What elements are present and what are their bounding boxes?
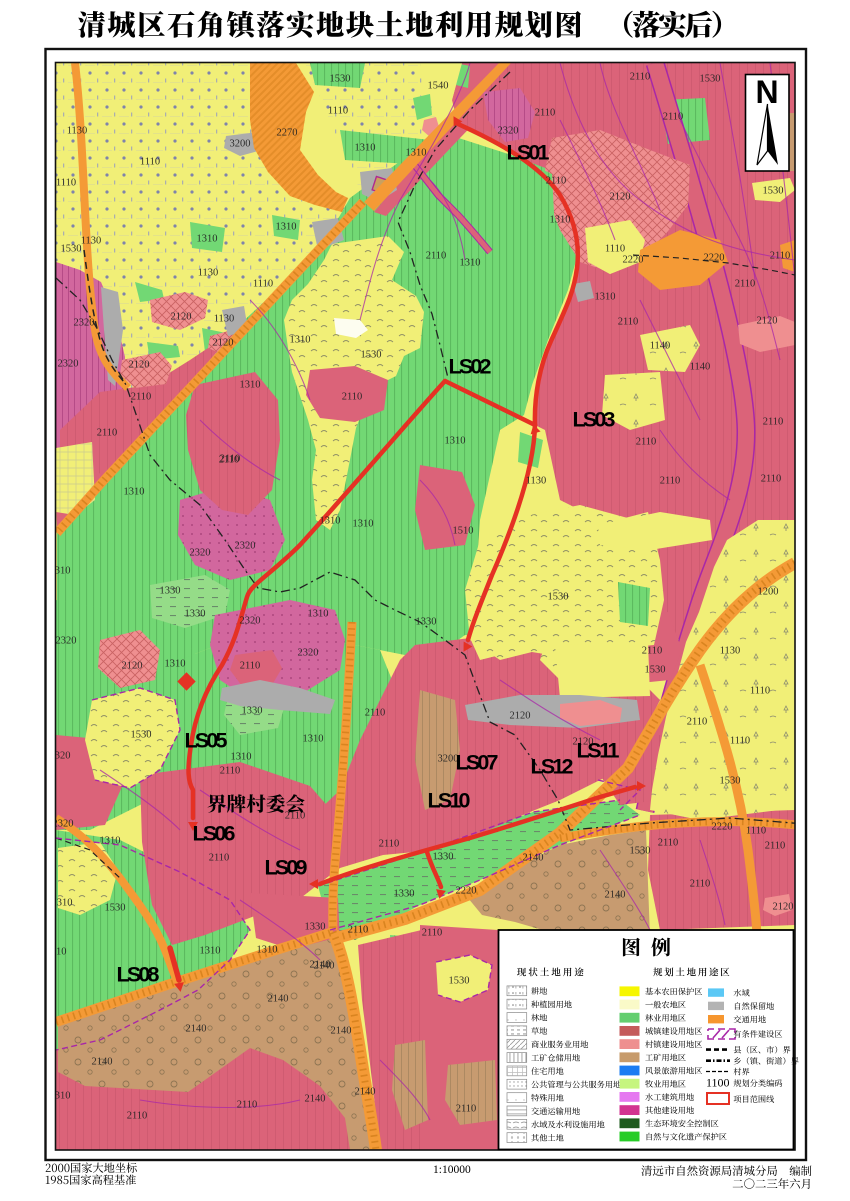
svg-text:2110: 2110	[663, 112, 684, 123]
svg-text:1330: 1330	[305, 922, 326, 933]
svg-text:2320: 2320	[56, 636, 77, 647]
svg-text:1110: 1110	[746, 826, 766, 837]
svg-text:2110: 2110	[97, 428, 118, 439]
svg-text:2110: 2110	[127, 1111, 148, 1122]
svg-text:2110: 2110	[342, 392, 363, 403]
svg-text:1100: 1100	[706, 1076, 730, 1090]
svg-text:2120: 2120	[757, 316, 778, 327]
svg-text:1530: 1530	[763, 186, 784, 197]
svg-text:1110: 1110	[140, 157, 160, 168]
svg-text:1530: 1530	[548, 592, 569, 603]
svg-text:LS10: LS10	[428, 789, 471, 813]
svg-text:1310: 1310	[406, 148, 427, 159]
svg-text:2110: 2110	[365, 708, 386, 719]
svg-text:2320: 2320	[240, 616, 261, 627]
svg-text:1310: 1310	[460, 258, 481, 269]
svg-text:2110: 2110	[546, 176, 567, 187]
svg-text:2140: 2140	[310, 960, 331, 971]
svg-text:2110: 2110	[535, 108, 556, 119]
svg-text:2120: 2120	[129, 360, 150, 371]
svg-text:2110: 2110	[422, 928, 443, 939]
svg-text:1540: 1540	[428, 81, 449, 92]
svg-text:2110: 2110	[687, 717, 708, 728]
svg-text:1330: 1330	[185, 609, 206, 620]
svg-text:2320: 2320	[190, 548, 211, 559]
svg-text:2120: 2120	[171, 312, 192, 323]
svg-text:1110: 1110	[253, 279, 273, 290]
svg-text:2110: 2110	[660, 476, 681, 487]
svg-text:2120: 2120	[510, 711, 531, 722]
svg-text:1130: 1130	[720, 646, 741, 657]
svg-text:1310: 1310	[308, 609, 329, 620]
svg-text:1310: 1310	[550, 215, 571, 226]
svg-text:1530: 1530	[105, 903, 126, 914]
svg-text:1530: 1530	[449, 976, 470, 987]
svg-text:2140: 2140	[331, 1026, 352, 1037]
svg-text:2110: 2110	[770, 251, 791, 262]
svg-text:1530: 1530	[720, 776, 741, 787]
svg-text:2110: 2110	[642, 646, 663, 657]
svg-text:2320: 2320	[74, 318, 95, 329]
svg-text:2110: 2110	[209, 853, 230, 864]
svg-text:LS05: LS05	[185, 729, 228, 753]
svg-text:2110: 2110	[219, 455, 240, 466]
svg-text:LS09: LS09	[265, 856, 308, 880]
svg-text:2220: 2220	[456, 886, 477, 897]
svg-text:1310: 1310	[231, 752, 252, 763]
svg-text:2120: 2120	[610, 192, 631, 203]
svg-text:1330: 1330	[394, 889, 415, 900]
svg-text:2110: 2110	[618, 317, 639, 328]
svg-text:2110: 2110	[630, 72, 651, 83]
svg-text:1310: 1310	[240, 380, 261, 391]
svg-text:2110: 2110	[426, 251, 447, 262]
svg-text:1130: 1130	[214, 314, 235, 325]
svg-text:LS12: LS12	[531, 755, 574, 779]
svg-text:1330: 1330	[242, 706, 263, 717]
svg-text:1530: 1530	[131, 730, 152, 741]
svg-text:2110: 2110	[761, 474, 782, 485]
svg-text:2140: 2140	[355, 1087, 376, 1098]
svg-text:1310: 1310	[320, 516, 341, 527]
svg-text:2140: 2140	[268, 994, 289, 1005]
svg-text:1510: 1510	[453, 526, 474, 537]
svg-text:2110: 2110	[765, 841, 786, 852]
svg-text:2120: 2120	[213, 338, 234, 349]
svg-text:1110: 1110	[730, 736, 750, 747]
svg-text:2110: 2110	[636, 437, 657, 448]
svg-text:2110: 2110	[763, 417, 784, 428]
svg-text:2220: 2220	[712, 822, 733, 833]
svg-text:1530: 1530	[61, 244, 82, 255]
svg-text:LS08: LS08	[117, 963, 160, 987]
svg-text:1310: 1310	[290, 335, 311, 346]
svg-text:2110: 2110	[456, 1104, 477, 1115]
svg-text:1110: 1110	[56, 178, 76, 189]
svg-text:1110: 1110	[605, 244, 625, 255]
svg-text:1530: 1530	[361, 350, 382, 361]
svg-text:1310: 1310	[165, 659, 186, 670]
svg-text:2110: 2110	[690, 879, 711, 890]
svg-text:LS07: LS07	[456, 751, 499, 775]
svg-text:2110: 2110	[658, 838, 679, 849]
svg-text:2110: 2110	[237, 1100, 258, 1111]
svg-text:1310: 1310	[303, 734, 324, 745]
svg-text:1200: 1200	[758, 587, 779, 598]
svg-text:2140: 2140	[186, 1024, 207, 1035]
svg-text:2110: 2110	[220, 766, 241, 777]
svg-text:1130: 1130	[67, 126, 88, 137]
svg-text:1310: 1310	[276, 222, 297, 233]
svg-text:LS03: LS03	[573, 408, 616, 432]
svg-text:1330: 1330	[433, 852, 454, 863]
svg-text:1310: 1310	[100, 836, 121, 847]
svg-text:1530: 1530	[645, 665, 666, 676]
svg-text:2110: 2110	[379, 839, 400, 850]
svg-text:1110: 1110	[750, 686, 770, 697]
svg-text:1330: 1330	[160, 586, 181, 597]
svg-text:2110: 2110	[131, 392, 152, 403]
svg-text:2120: 2120	[773, 902, 794, 913]
svg-text:2110: 2110	[240, 661, 261, 672]
svg-text:2140: 2140	[305, 1094, 326, 1105]
svg-text:LS11: LS11	[577, 739, 620, 763]
svg-text:1140: 1140	[690, 362, 711, 373]
svg-text:1140: 1140	[650, 341, 671, 352]
svg-text:1330: 1330	[416, 617, 437, 628]
svg-text:1310: 1310	[257, 945, 278, 956]
svg-text:1130: 1130	[198, 268, 219, 279]
svg-text:1310: 1310	[197, 234, 218, 245]
svg-text:2110: 2110	[735, 279, 756, 290]
svg-text:2220: 2220	[704, 253, 725, 264]
svg-text:2140: 2140	[523, 853, 544, 864]
svg-text:1530: 1530	[700, 74, 721, 85]
svg-text:1310: 1310	[353, 519, 374, 530]
svg-text:2320: 2320	[235, 541, 256, 552]
svg-text:2320: 2320	[298, 648, 319, 659]
svg-text:1130: 1130	[81, 236, 102, 247]
svg-text:2140: 2140	[605, 890, 626, 901]
svg-text:2320: 2320	[498, 126, 519, 137]
svg-text:2140: 2140	[92, 1057, 113, 1068]
svg-text:2110: 2110	[348, 925, 369, 936]
svg-text:1110: 1110	[328, 106, 348, 117]
svg-text:2270: 2270	[277, 128, 298, 139]
svg-text:2320: 2320	[58, 359, 79, 370]
svg-text:3200: 3200	[230, 139, 251, 150]
svg-text:2120: 2120	[122, 661, 143, 672]
svg-text:1310: 1310	[124, 487, 145, 498]
svg-text:1310: 1310	[445, 436, 466, 447]
svg-text:LS02: LS02	[449, 355, 492, 379]
svg-text:LS06: LS06	[193, 822, 236, 846]
svg-text:1310: 1310	[355, 143, 376, 154]
svg-text:LS01: LS01	[507, 141, 550, 165]
svg-text:1130: 1130	[526, 476, 547, 487]
svg-text:1:10000: 1:10000	[433, 1164, 471, 1176]
svg-text:1310: 1310	[200, 946, 221, 957]
svg-text:1310: 1310	[595, 292, 616, 303]
svg-text:2220: 2220	[623, 255, 644, 266]
svg-text:1530: 1530	[630, 846, 651, 857]
svg-text:1530: 1530	[330, 74, 351, 85]
